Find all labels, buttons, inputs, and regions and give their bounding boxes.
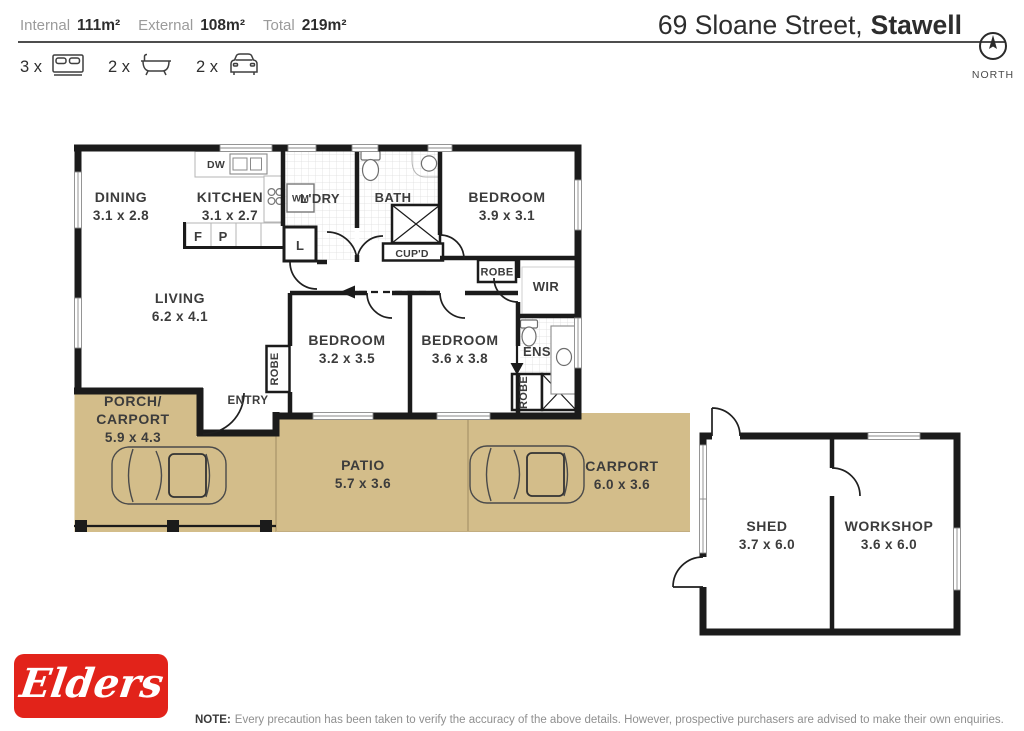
label-wir: WIR [533, 279, 560, 294]
room-dims-bed3: 3.6 x 3.8 [432, 351, 488, 366]
room-dims-kitchen: 3.1 x 2.7 [202, 208, 258, 223]
room-dims-bed2: 3.2 x 3.5 [319, 351, 375, 366]
label-ens: ENS [523, 344, 551, 359]
label-robe1: ROBE [481, 267, 514, 279]
room-dims-workshop: 3.6 x 6.0 [861, 537, 917, 552]
room-dims-bed1: 3.9 x 3.1 [479, 208, 535, 223]
label-dw: DW [207, 159, 225, 171]
note-text: Every precaution has been taken to verif… [235, 714, 1004, 726]
floorplan-svg: DINING 3.1 x 2.8 KITCHEN 3.1 x 2.7 L'DRY… [0, 0, 1024, 731]
label-fridge: F [194, 229, 202, 244]
toilet-icon [361, 151, 380, 181]
room-label-porch2: CARPORT [96, 411, 169, 427]
room-label-workshop: WORKSHOP [845, 518, 934, 534]
room-label-shed: SHED [746, 518, 787, 534]
room-dims-carport: 6.0 x 3.6 [594, 477, 650, 492]
disclaimer-note: NOTE:Every precaution has been taken to … [195, 714, 1004, 726]
note-label: NOTE: [195, 714, 231, 726]
room-dims-shed: 3.7 x 6.0 [739, 537, 795, 552]
elders-logo: Elders [14, 654, 168, 718]
ens-toilet-icon [521, 320, 538, 346]
room-label-patio: PATIO [341, 457, 385, 473]
room-label-bed2: BEDROOM [308, 332, 385, 348]
room-dims-porch: 5.9 x 4.3 [105, 430, 161, 445]
room-label-bath: BATH [375, 190, 412, 205]
label-robe3: ROBE [518, 376, 530, 409]
room-label-bed1: BEDROOM [468, 189, 545, 205]
label-pantry: P [219, 229, 228, 244]
room-label-dining: DINING [95, 189, 148, 205]
room-dims-living: 6.2 x 4.1 [152, 309, 208, 324]
label-wm: WM [292, 194, 309, 205]
ens-vanity-icon [551, 326, 577, 394]
room-label-carport: CARPORT [585, 458, 658, 474]
basin-icon [421, 156, 436, 171]
room-label-living: LIVING [155, 290, 205, 306]
label-linen: L [296, 238, 304, 253]
room-dims-patio: 5.7 x 3.6 [335, 476, 391, 491]
floorplan-page: Internal 111m² External 108m² Total 219m… [0, 0, 1024, 731]
room-label-porch1: PORCH/ [104, 393, 162, 409]
room-label-kitchen: KITCHEN [197, 189, 263, 205]
elders-logo-text: Elders [17, 664, 166, 708]
shower-icon [392, 205, 440, 243]
label-robe2: ROBE [269, 353, 281, 386]
label-entry: ENTRY [227, 395, 268, 407]
room-label-bed3: BEDROOM [421, 332, 498, 348]
room-dims-dining: 3.1 x 2.8 [93, 208, 149, 223]
label-cupboard: CUP'D [395, 248, 428, 260]
